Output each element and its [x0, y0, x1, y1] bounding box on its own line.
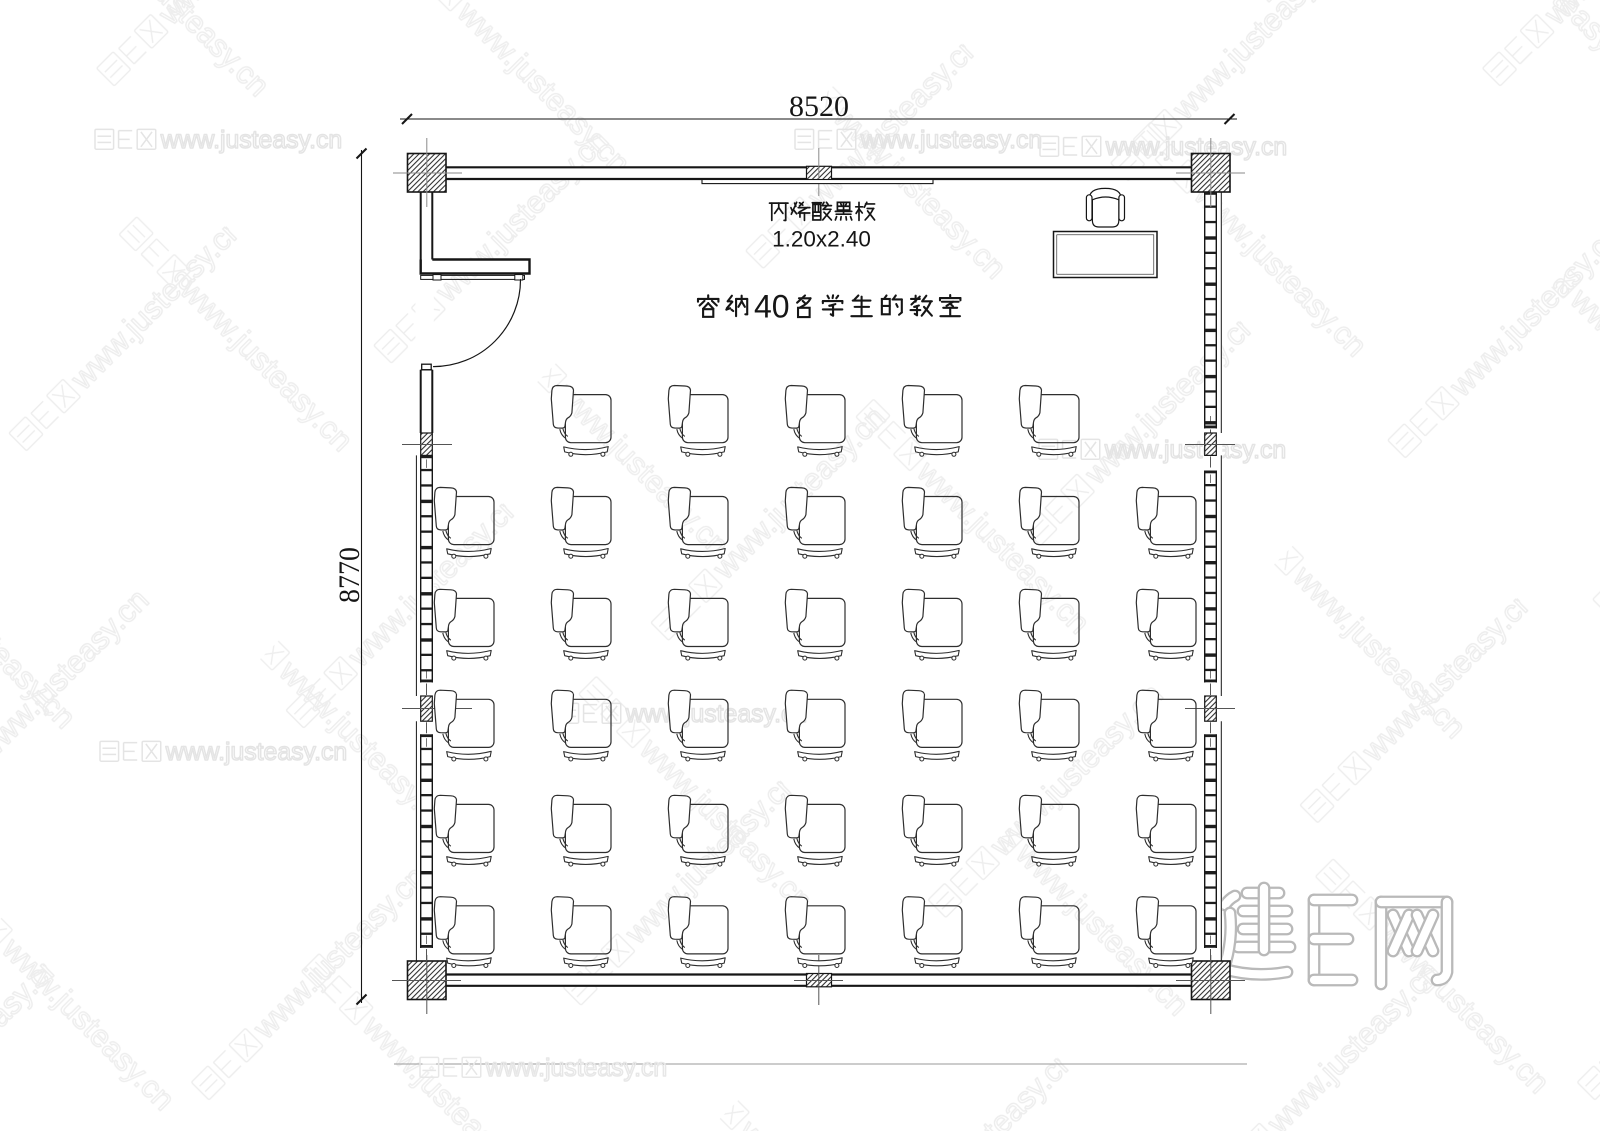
svg-text:8520: 8520 — [789, 90, 849, 123]
svg-text:1.20x2.40: 1.20x2.40 — [772, 227, 871, 252]
svg-text:8770: 8770 — [333, 547, 366, 603]
svg-text:40: 40 — [754, 289, 790, 325]
